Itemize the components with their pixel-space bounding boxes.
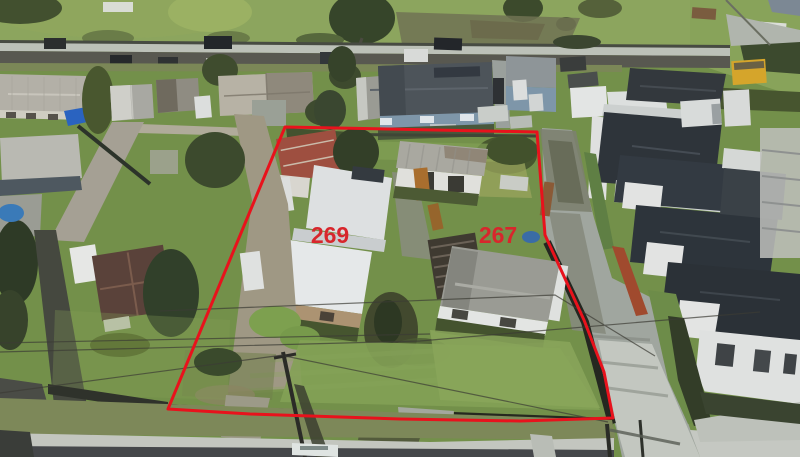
svg-text:267: 267 xyxy=(479,222,517,248)
svg-text:269: 269 xyxy=(311,222,349,248)
